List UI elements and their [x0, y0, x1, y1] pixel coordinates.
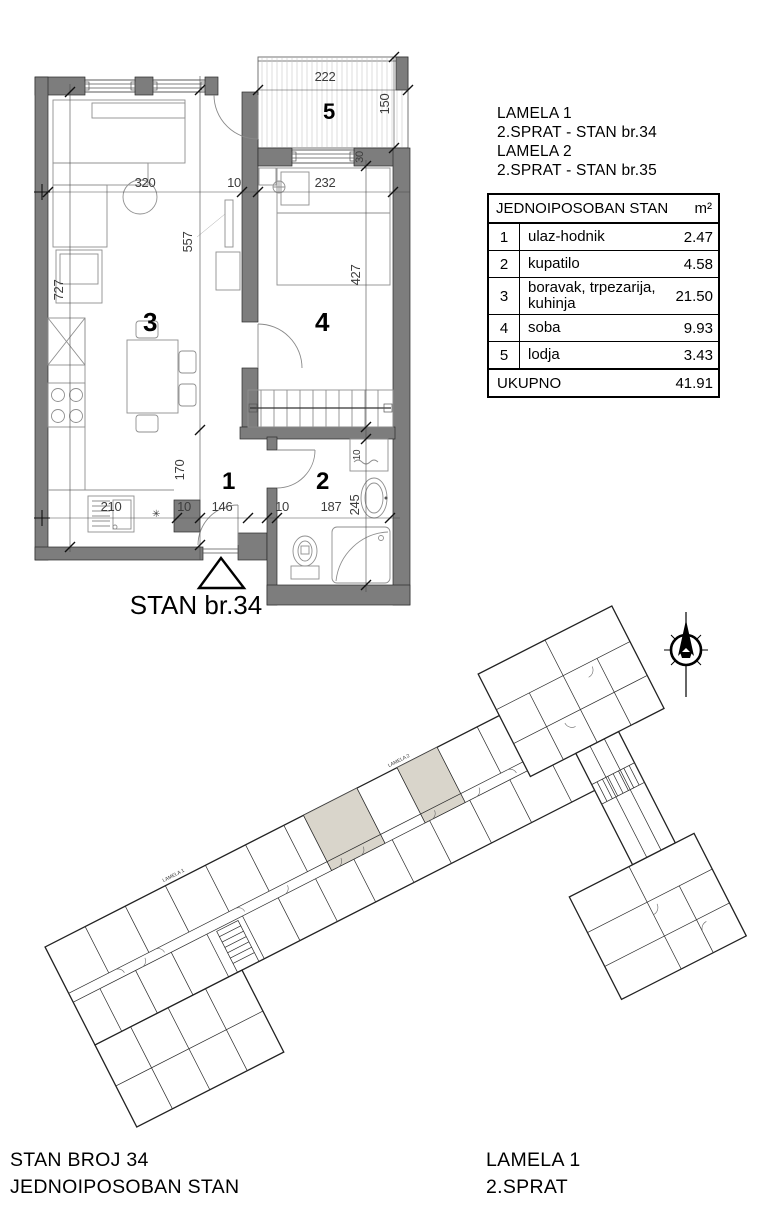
dim-lodja-height: 150 — [377, 94, 392, 115]
row-area: 2.47 — [659, 229, 718, 246]
dim-bath-height: 245 — [347, 495, 362, 516]
tv-panel — [225, 200, 233, 247]
total-label: UKUPNO — [489, 375, 659, 392]
building-site-plan: LAMELA 1 LAMELA 2 — [0, 600, 764, 1160]
dim-bath-wall: 10 — [275, 499, 289, 514]
dim-bedroom-height: 427 — [348, 265, 363, 286]
bath-sink — [361, 478, 388, 518]
footer-stan-number: STAN BROJ 34 — [10, 1149, 149, 1172]
row-area: 4.58 — [659, 256, 718, 273]
window-living-right — [153, 80, 205, 92]
header-line-3: LAMELA 2 — [497, 142, 747, 161]
footer-lamela: LAMELA 1 — [486, 1149, 581, 1172]
row-area: 3.43 — [659, 347, 718, 364]
table-total-row: UKUPNO 41.91 — [489, 369, 718, 396]
header-line-2: 2.SPRAT - STAN br.34 — [497, 123, 747, 142]
door-bathroom — [277, 450, 315, 488]
row-num: 2 — [489, 251, 520, 277]
table-row: 1 ulaz-hodnik 2.47 — [489, 224, 718, 251]
area-table: JEDNOIPOSOBAN STAN m² 1 ulaz-hodnik 2.47… — [487, 193, 720, 398]
dim-hall-wall: 10 — [177, 499, 191, 514]
room-label-4: 4 — [315, 307, 330, 337]
dim-bedroom-width: 232 — [315, 175, 336, 190]
dim-wall-10a: 10 — [227, 175, 241, 190]
row-area: 9.93 — [659, 320, 718, 337]
dim-left-height: 727 — [51, 280, 66, 301]
north-compass-icon — [664, 612, 708, 697]
furniture-bedroom — [248, 168, 393, 427]
wing-connector — [576, 732, 676, 865]
dim-living-height: 557 — [180, 232, 195, 253]
dim-lodja-width: 222 — [315, 69, 336, 84]
apartment-floor-plan: 222 150 30 320 10 232 557 727 427 170 10… — [0, 0, 470, 640]
window-living-left — [85, 80, 135, 92]
header-line-1: LAMELA 1 — [497, 104, 747, 123]
dim-wall-30: 30 — [354, 151, 366, 163]
shower — [332, 527, 390, 583]
right-cluster — [569, 833, 746, 999]
dim-bath-width: 187 — [321, 499, 342, 514]
room-label-1: 1 — [222, 468, 235, 495]
media-cabinet — [216, 252, 240, 290]
kitchen-counter — [48, 318, 174, 490]
nightstand — [259, 168, 276, 185]
table-row: 3 boravak, trpezarija, kuhinja 21.50 — [489, 278, 718, 315]
dim-hall-height: 170 — [172, 460, 187, 481]
dim-hall-width: 146 — [212, 499, 233, 514]
row-num: 4 — [489, 315, 520, 341]
row-num: 5 — [489, 342, 520, 368]
drain-symbol: ✳ — [152, 509, 160, 520]
entrance-threshold — [203, 549, 238, 553]
chair — [136, 415, 158, 432]
footer-floor: 2.SPRAT — [486, 1176, 568, 1199]
dim-living-width: 320 — [135, 175, 156, 190]
row-name: kupatilo — [520, 256, 659, 272]
footer-apartment-type: JEDNOIPOSOBAN STAN — [10, 1176, 239, 1199]
row-area: 21.50 — [659, 288, 718, 305]
header-line-4: 2.SPRAT - STAN br.35 — [497, 161, 747, 180]
row-name: ulaz-hodnik — [520, 229, 659, 245]
door-bedroom — [258, 324, 302, 368]
row-name: soba — [520, 320, 659, 336]
header-block: LAMELA 1 2.SPRAT - STAN br.34 LAMELA 2 2… — [497, 104, 747, 180]
table-row: 4 soba 9.93 — [489, 315, 718, 342]
fridge — [48, 318, 85, 365]
table-row: 2 kupatilo 4.58 — [489, 251, 718, 278]
area-table-unit: m² — [695, 200, 713, 217]
stove — [48, 383, 85, 427]
room-label-3: 3 — [143, 307, 157, 337]
table-row: 5 lodja 3.43 — [489, 342, 718, 369]
row-num: 3 — [489, 278, 520, 314]
row-name: lodja — [520, 347, 659, 363]
outlet-symbol — [273, 181, 285, 193]
dining-table — [127, 321, 196, 432]
room-label-2: 2 — [316, 468, 329, 495]
area-table-title: JEDNOIPOSOBAN STAN — [496, 200, 668, 217]
chair — [179, 384, 196, 406]
row-name: boravak, trpezarija, kuhinja — [520, 280, 659, 312]
wardrobe — [248, 390, 393, 427]
window-bedroom — [292, 150, 354, 163]
dim-washer: 10 — [352, 449, 363, 460]
dim-kitchen-width: 210 — [101, 499, 122, 514]
row-num: 1 — [489, 224, 520, 250]
room-label-5: 5 — [323, 99, 335, 124]
toilet — [291, 536, 319, 579]
area-table-header: JEDNOIPOSOBAN STAN m² — [489, 195, 718, 224]
total-value: 41.91 — [659, 375, 718, 392]
chair — [179, 351, 196, 373]
